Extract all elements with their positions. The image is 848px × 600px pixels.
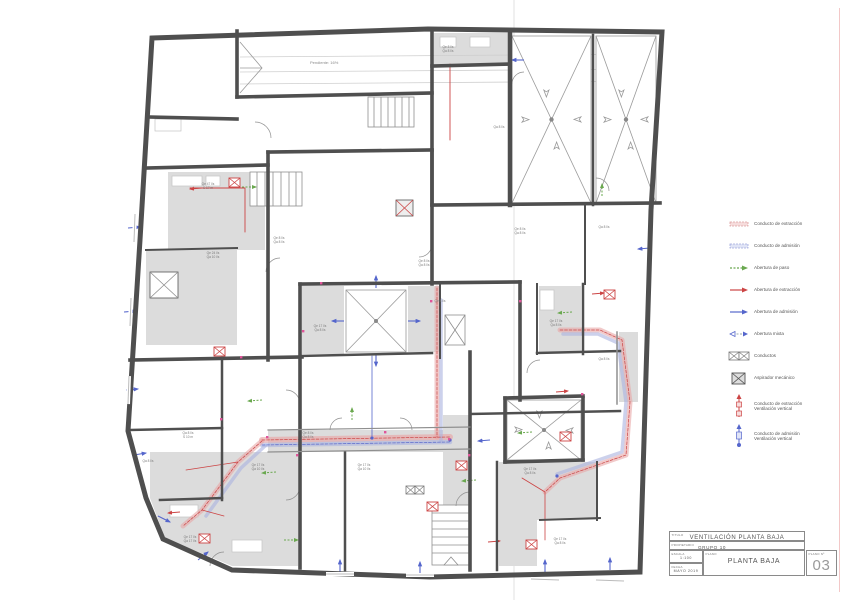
legend-item: Abertura de paso: [728, 261, 846, 275]
box-x-icon: [728, 371, 750, 385]
owner-name: GRUPO 10: [698, 545, 804, 550]
riser-blue-icon: [728, 423, 750, 449]
stair-top-center: [368, 97, 414, 127]
legend-item-label: Abertura de extracción: [750, 287, 800, 292]
legend: Conducto de extracciónConducto de admisi…: [728, 217, 846, 453]
title-block: TITULO VENTILACIÓN PLANTA BAJA PROPIETAR…: [669, 531, 837, 576]
room-label: Qe 17 l/sQa 8 l/s: [314, 325, 327, 333]
legend-item: Aspirador mecánico: [728, 371, 846, 385]
room-label: Qe 17 l/sQa 10 l/s: [358, 464, 371, 472]
legend-item-label: Conducto de admisión: [750, 243, 800, 248]
legend-item: Conducto de admisión: [728, 239, 846, 253]
legend-item: Abertura de admisión: [728, 305, 846, 319]
room-label: Qe 8 l/sQa 8 l/s: [515, 228, 526, 236]
room-label: Qa 8 l/s: [143, 460, 154, 464]
plan-name: PLANTA BAJA: [704, 558, 804, 565]
box-double-icon: [728, 349, 750, 363]
room-label: Qa 8 l/s: [599, 226, 610, 230]
vent-shaft-core: [396, 200, 413, 216]
titleblock-propietario-label: PROPIETARIO: [672, 543, 694, 547]
arrow-red-icon: [728, 283, 750, 297]
shaft-left: [150, 272, 178, 298]
stair-top-left: [250, 172, 302, 206]
legend-item-label: Abertura de admisión: [750, 309, 798, 314]
room-label: Qe 17 l/sQa 17 l/s: [184, 536, 197, 544]
legend-item: Abertura de extracción: [728, 283, 846, 297]
riser-red-icon: [728, 393, 750, 419]
legend-item-label: Aspirador mecánico: [750, 375, 795, 380]
titleblock-plano-label: PLANO: [706, 552, 717, 556]
room-label: Qe 17 l/sQa 10 l/s: [252, 464, 265, 472]
room-label: Qe 17 l/sQa 8 l/s: [554, 538, 567, 546]
legend-item: Abertura mixta: [728, 327, 846, 341]
elevator: [445, 315, 465, 345]
room-label: Qa 8 l/s: [599, 358, 610, 362]
ramp-label: Pendiente: 16%: [310, 60, 339, 65]
conductos-double-box: [406, 486, 424, 494]
patio-central: [346, 290, 406, 352]
room-label: Qe 24 l/sQa 10 l/s: [207, 252, 220, 260]
duct-blue-icon: [728, 239, 750, 253]
duct-red-icon: [728, 217, 750, 231]
room-label: Qe 8 l/sQa 8 l/s: [443, 46, 454, 54]
arrow-blue-icon: [728, 305, 750, 319]
drawing-sheet: Pendiente: 16% Qe 47 l/sS 17 mQe 24 l/sQ…: [0, 0, 848, 600]
arrow-mixed-icon: [728, 327, 750, 341]
legend-item: Conducto de extracción: [728, 217, 846, 231]
legend-item: Conductos: [728, 349, 846, 363]
legend-item-label: Abertura de paso: [750, 265, 789, 270]
titleblock-plano-num-label: PLANO Nº: [809, 552, 825, 556]
legend-item-label: Conducto de extracción: [750, 221, 802, 226]
legend-item-label: Conductos: [750, 353, 776, 358]
legend-item-label: Conducto de admisiónVentilación vertical: [750, 431, 800, 441]
room-label: Qe 17 l/sQa 8 l/s: [524, 468, 537, 476]
legend-item-label: Abertura mixta: [750, 331, 784, 336]
date-value: MAYO 2019: [670, 569, 702, 573]
legend-item: Conducto de extracciónVentilación vertic…: [728, 393, 846, 419]
patio-top-2: [596, 36, 656, 203]
patio-top-1: [512, 36, 591, 203]
room-label: Qe 17 l/sQa 8 l/s: [550, 320, 563, 328]
sheet-number: 03: [807, 557, 836, 574]
legend-item-label: Conducto de extracciónVentilación vertic…: [750, 401, 802, 411]
room-label: Qe 8 l/s: [435, 300, 446, 304]
legend-item: Conducto de admisiónVentilación vertical: [728, 423, 846, 449]
room-label: Qe 8 l/sQa 8 l/s: [303, 432, 314, 440]
room-label: Qa 8 l/sS 10 m: [183, 432, 194, 440]
room-label: Qa 8 l/s: [494, 126, 505, 130]
floor-plan: Pendiente: 16%: [0, 0, 848, 600]
room-label: Qe 8 l/sQa 8 l/s: [419, 260, 430, 268]
stair-bottom-center: [432, 505, 470, 565]
room-label: Qe 47 l/sS 17 m: [202, 183, 215, 191]
room-label: Qe 8 l/sQa 8 l/s: [274, 237, 285, 245]
scale-value: 1:100: [670, 556, 702, 560]
arrow-green-icon: [728, 261, 750, 275]
patio-bottom-right: [507, 400, 581, 460]
